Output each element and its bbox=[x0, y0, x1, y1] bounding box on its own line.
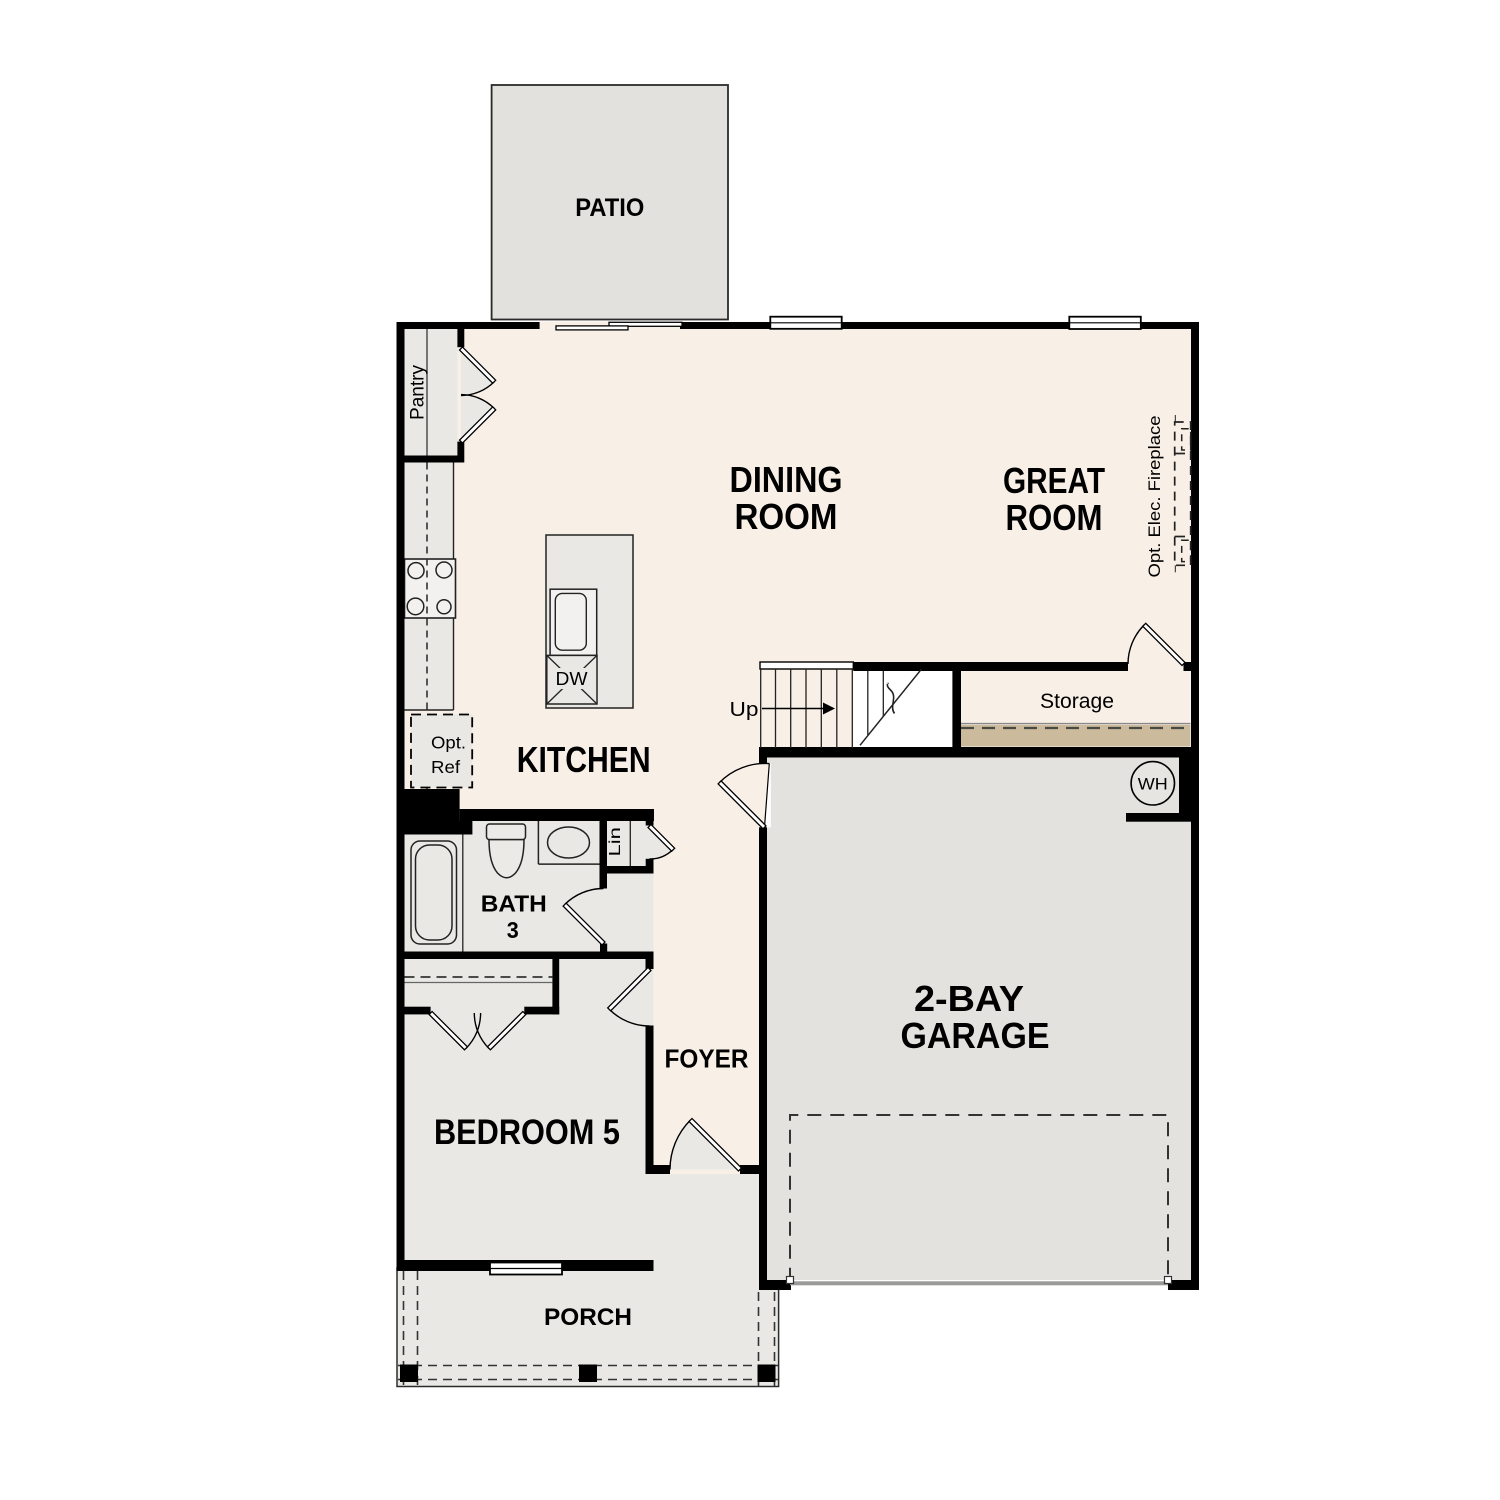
svg-text:2-BAY: 2-BAY bbox=[914, 978, 1024, 1019]
svg-text:Ref: Ref bbox=[431, 757, 460, 777]
svg-text:Lin: Lin bbox=[607, 827, 624, 857]
svg-text:KITCHEN: KITCHEN bbox=[517, 739, 651, 780]
svg-text:Up: Up bbox=[730, 699, 759, 721]
svg-text:DW: DW bbox=[556, 669, 588, 689]
svg-text:BEDROOM 5: BEDROOM 5 bbox=[434, 1113, 620, 1152]
svg-text:Opt.: Opt. bbox=[431, 733, 466, 753]
svg-text:BATH: BATH bbox=[481, 891, 547, 917]
svg-text:WH: WH bbox=[1138, 775, 1168, 794]
svg-text:DINING: DINING bbox=[730, 459, 843, 500]
svg-text:Opt. Elec. Fireplace: Opt. Elec. Fireplace bbox=[1145, 416, 1164, 578]
svg-text:FOYER: FOYER bbox=[665, 1044, 749, 1074]
svg-text:GARAGE: GARAGE bbox=[901, 1015, 1050, 1056]
svg-text:3: 3 bbox=[507, 917, 519, 943]
svg-text:GREAT: GREAT bbox=[1003, 460, 1105, 501]
svg-text:PATIO: PATIO bbox=[575, 194, 644, 222]
svg-text:Pantry: Pantry bbox=[408, 365, 429, 420]
svg-text:ROOM: ROOM bbox=[1006, 497, 1103, 538]
svg-text:PORCH: PORCH bbox=[544, 1304, 632, 1331]
svg-text:ROOM: ROOM bbox=[735, 496, 838, 537]
svg-text:Storage: Storage bbox=[1040, 690, 1114, 713]
